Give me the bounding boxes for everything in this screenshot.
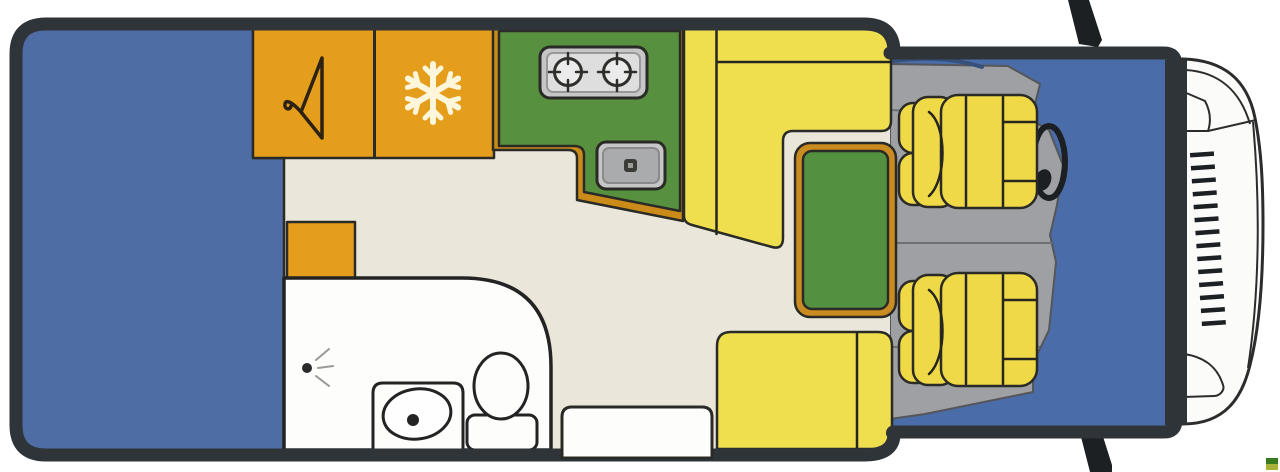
entry-step (562, 407, 712, 458)
passenger-seat (899, 273, 1037, 386)
bench-seat (717, 332, 892, 449)
small-cabinet (287, 222, 355, 278)
floorplan-svg (0, 0, 1280, 472)
dinette-table-top (803, 151, 888, 309)
washbasin-icon (373, 383, 463, 450)
driver-seat (899, 95, 1037, 208)
floorplan-canvas (0, 0, 1280, 472)
brand-mark (1266, 458, 1278, 470)
bed (20, 28, 284, 451)
sink-drain-icon (624, 159, 637, 172)
